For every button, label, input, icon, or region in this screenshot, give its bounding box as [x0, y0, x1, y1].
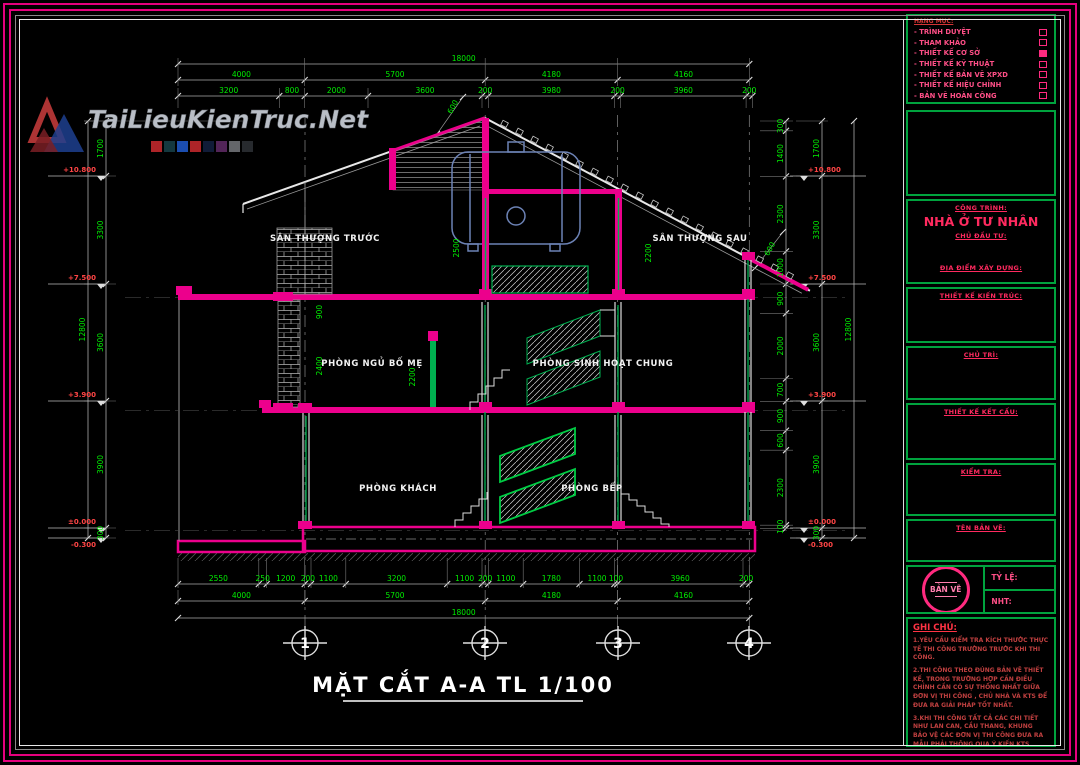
svg-text:3200: 3200	[387, 574, 406, 583]
grid-bubble-2: 2	[480, 636, 490, 652]
svg-text:1100: 1100	[319, 574, 338, 583]
dim: 18000	[452, 54, 476, 63]
svg-text:250: 250	[256, 574, 271, 583]
legend-box: HẠNG MỤC: TRÌNH DUYỆT THAM KHẢO THIẾT KẾ…	[906, 14, 1056, 104]
svg-text:4180: 4180	[542, 591, 561, 600]
structural-box: THIẾT KẾ KẾT CẤU:	[906, 403, 1056, 460]
svg-text:4160: 4160	[674, 591, 693, 600]
svg-text:3300: 3300	[812, 220, 821, 239]
room-bedroom: PHÒNG NGỦ BỐ MẸ	[321, 356, 423, 369]
svg-text:1100: 1100	[455, 574, 474, 583]
legend-item: BẢN VẼ HOÀN CÔNG	[908, 91, 1054, 102]
legend-item: THIẾT KẾ CƠ SỞ	[908, 48, 1054, 59]
sheet-title: MẶT CẮT A-A TL 1/100	[312, 669, 614, 697]
project-label: CÔNG TRÌNH:	[908, 204, 1054, 212]
sheet-name-box: TÊN BẢN VẼ:	[906, 519, 1056, 562]
svg-text:-0.300: -0.300	[71, 541, 96, 549]
level-label: +10.800	[63, 166, 96, 174]
svg-text:1700: 1700	[812, 139, 821, 158]
svg-text:3980: 3980	[542, 86, 561, 95]
svg-text:4160: 4160	[674, 70, 693, 79]
grid-bubble-3: 3	[613, 636, 623, 652]
legend-item: THIẾT KẾ KỸ THUẬT	[908, 59, 1054, 70]
note: 3.KHI THI CÔNG TẤT CẢ CÁC CHI TIẾT NHƯ L…	[913, 715, 1049, 748]
logo-box	[906, 110, 1056, 196]
brick-walls	[273, 228, 332, 413]
svg-text:3300: 3300	[96, 220, 105, 239]
grid-bubbles	[283, 626, 771, 660]
svg-text:4000: 4000	[232, 70, 251, 79]
grid-bubble-4: 4	[744, 636, 754, 652]
svg-text:2550: 2550	[209, 574, 228, 583]
svg-text:12800: 12800	[78, 317, 87, 341]
lead-box: CHỦ TRÌ:	[906, 346, 1056, 400]
svg-text:300: 300	[812, 526, 821, 541]
svg-text:3200: 3200	[219, 86, 238, 95]
svg-text:3600: 3600	[812, 333, 821, 352]
notes-box: GHI CHÚ: 1.YÊU CẦU KIỂM TRA KÍCH THƯỚC T…	[906, 617, 1056, 747]
architect-box: THIẾT KẾ KIẾN TRÚC:	[906, 287, 1056, 343]
room-terrace-front: SÂN THƯỢNG TRƯỚC	[270, 232, 380, 244]
svg-text:100: 100	[776, 519, 785, 534]
svg-text:1100: 1100	[496, 574, 515, 583]
svg-text:1400: 1400	[776, 144, 785, 163]
checkbox	[1039, 29, 1047, 36]
svg-text:100: 100	[609, 574, 624, 583]
svg-text:2500: 2500	[452, 238, 461, 257]
checkbox	[1039, 82, 1047, 89]
svg-text:5700: 5700	[385, 70, 404, 79]
svg-text:2000: 2000	[776, 336, 785, 355]
svg-text:600: 600	[445, 98, 460, 115]
check-box: KIỂM TRA:	[906, 463, 1056, 516]
legend-item: TRÌNH DUYỆT	[908, 27, 1054, 38]
svg-text:200: 200	[301, 574, 316, 583]
svg-text:200: 200	[478, 574, 493, 583]
svg-text:2400: 2400	[315, 356, 324, 375]
svg-text:2200: 2200	[408, 367, 417, 386]
project-box: CÔNG TRÌNH: NHÀ Ở TƯ NHÂN CHỦ ĐẦU TƯ: ĐỊ…	[906, 199, 1056, 284]
svg-text:18000: 18000	[452, 608, 476, 617]
scale-label: TỶ LỆ:	[985, 567, 1054, 589]
svg-text:5700: 5700	[385, 591, 404, 600]
svg-text:3600: 3600	[415, 86, 434, 95]
sheet-no-label: NHT:	[985, 589, 1054, 613]
svg-text:800: 800	[285, 86, 300, 95]
svg-text:200: 200	[739, 574, 754, 583]
legend-item: THIẾT KẾ HIỆU CHỈNH	[908, 80, 1054, 91]
svg-text:1700: 1700	[96, 139, 105, 158]
svg-text:900: 900	[315, 305, 324, 320]
svg-text:12800: 12800	[844, 317, 853, 341]
watermark-squares	[151, 141, 253, 152]
section-drawing: 1 2 3 4 SÂN THƯỢNG TRƯỚC SÂN THƯỢNG SAU …	[0, 0, 905, 765]
svg-text:900: 900	[776, 291, 785, 306]
room-living: PHÒNG KHÁCH	[359, 482, 437, 494]
grid-bubble-1: 1	[300, 636, 310, 652]
svg-text:1780: 1780	[542, 574, 561, 583]
watermark-text: TaiLieuKienTruc.Net	[88, 105, 369, 134]
note: 1.YÊU CẦU KIỂM TRA KÍCH THƯỚC THỰC TẾ TH…	[913, 637, 1049, 663]
cad-sheet: 1 2 3 4 SÂN THƯỢNG TRƯỚC SÂN THƯỢNG SAU …	[0, 0, 1080, 765]
svg-text:2000: 2000	[327, 86, 346, 95]
checkbox	[1039, 71, 1047, 78]
svg-text:3900: 3900	[812, 455, 821, 474]
svg-text:200: 200	[742, 86, 757, 95]
svg-text:±0.000: ±0.000	[808, 518, 836, 526]
floor-slabs	[176, 286, 755, 561]
svg-text:700: 700	[776, 383, 785, 398]
svg-text:+3.900: +3.900	[68, 391, 96, 399]
svg-text:900: 900	[776, 409, 785, 424]
checkbox	[1039, 92, 1047, 99]
svg-text:1200: 1200	[276, 574, 295, 583]
checkbox	[1039, 61, 1047, 68]
interior-column	[428, 331, 438, 407]
client-label: CHỦ ĐẦU TƯ:	[908, 232, 1054, 240]
stamp-box: BẢN VẼ TỶ LỆ: NHT:	[906, 565, 1056, 614]
project-name: NHÀ Ở TƯ NHÂN	[908, 214, 1054, 229]
svg-text:+7.500: +7.500	[68, 274, 96, 282]
svg-text:4000: 4000	[232, 591, 251, 600]
svg-text:3960: 3960	[671, 574, 690, 583]
svg-text:300: 300	[96, 526, 105, 541]
svg-text:±0.000: ±0.000	[68, 518, 96, 526]
svg-text:200: 200	[610, 86, 625, 95]
svg-text:+3.900: +3.900	[808, 391, 836, 399]
svg-text:2300: 2300	[776, 204, 785, 223]
legend-title: HẠNG MỤC:	[914, 18, 1054, 25]
room-terrace-rear: SÂN THƯỢNG SAU	[652, 232, 747, 244]
svg-text:+10.800: +10.800	[808, 166, 841, 174]
svg-text:2300: 2300	[776, 478, 785, 497]
svg-text:3960: 3960	[674, 86, 693, 95]
svg-text:200: 200	[478, 86, 493, 95]
svg-text:600: 600	[776, 433, 785, 448]
svg-text:4180: 4180	[542, 70, 561, 79]
svg-text:1000: 1000	[776, 258, 785, 277]
checkbox	[1039, 50, 1047, 57]
svg-text:300: 300	[776, 119, 785, 134]
svg-text:3900: 3900	[96, 455, 105, 474]
room-living-common: PHÒNG SINH HOẠT CHUNG	[533, 357, 674, 369]
svg-text:+7.500: +7.500	[808, 274, 836, 282]
legend-item: THIẾT KẾ BẢN VẼ XPXD	[908, 69, 1054, 80]
titleblock-separator	[903, 20, 904, 745]
watermark-logo	[30, 104, 84, 152]
checkbox	[1039, 39, 1047, 46]
svg-text:3600: 3600	[96, 333, 105, 352]
svg-text:2200: 2200	[644, 243, 653, 262]
svg-text:1100: 1100	[587, 574, 606, 583]
legend-item: THAM KHẢO	[908, 38, 1054, 49]
svg-text:-0.300: -0.300	[808, 541, 833, 549]
location-label: ĐỊA ĐIỂM XÂY DỰNG:	[908, 264, 1054, 272]
note: 2.THI CÔNG THEO ĐÚNG BẢN VẼ THIẾT KẾ, TR…	[913, 667, 1049, 710]
notes-title: GHI CHÚ:	[913, 623, 1054, 633]
stamp-seal: BẢN VẼ	[922, 566, 970, 614]
